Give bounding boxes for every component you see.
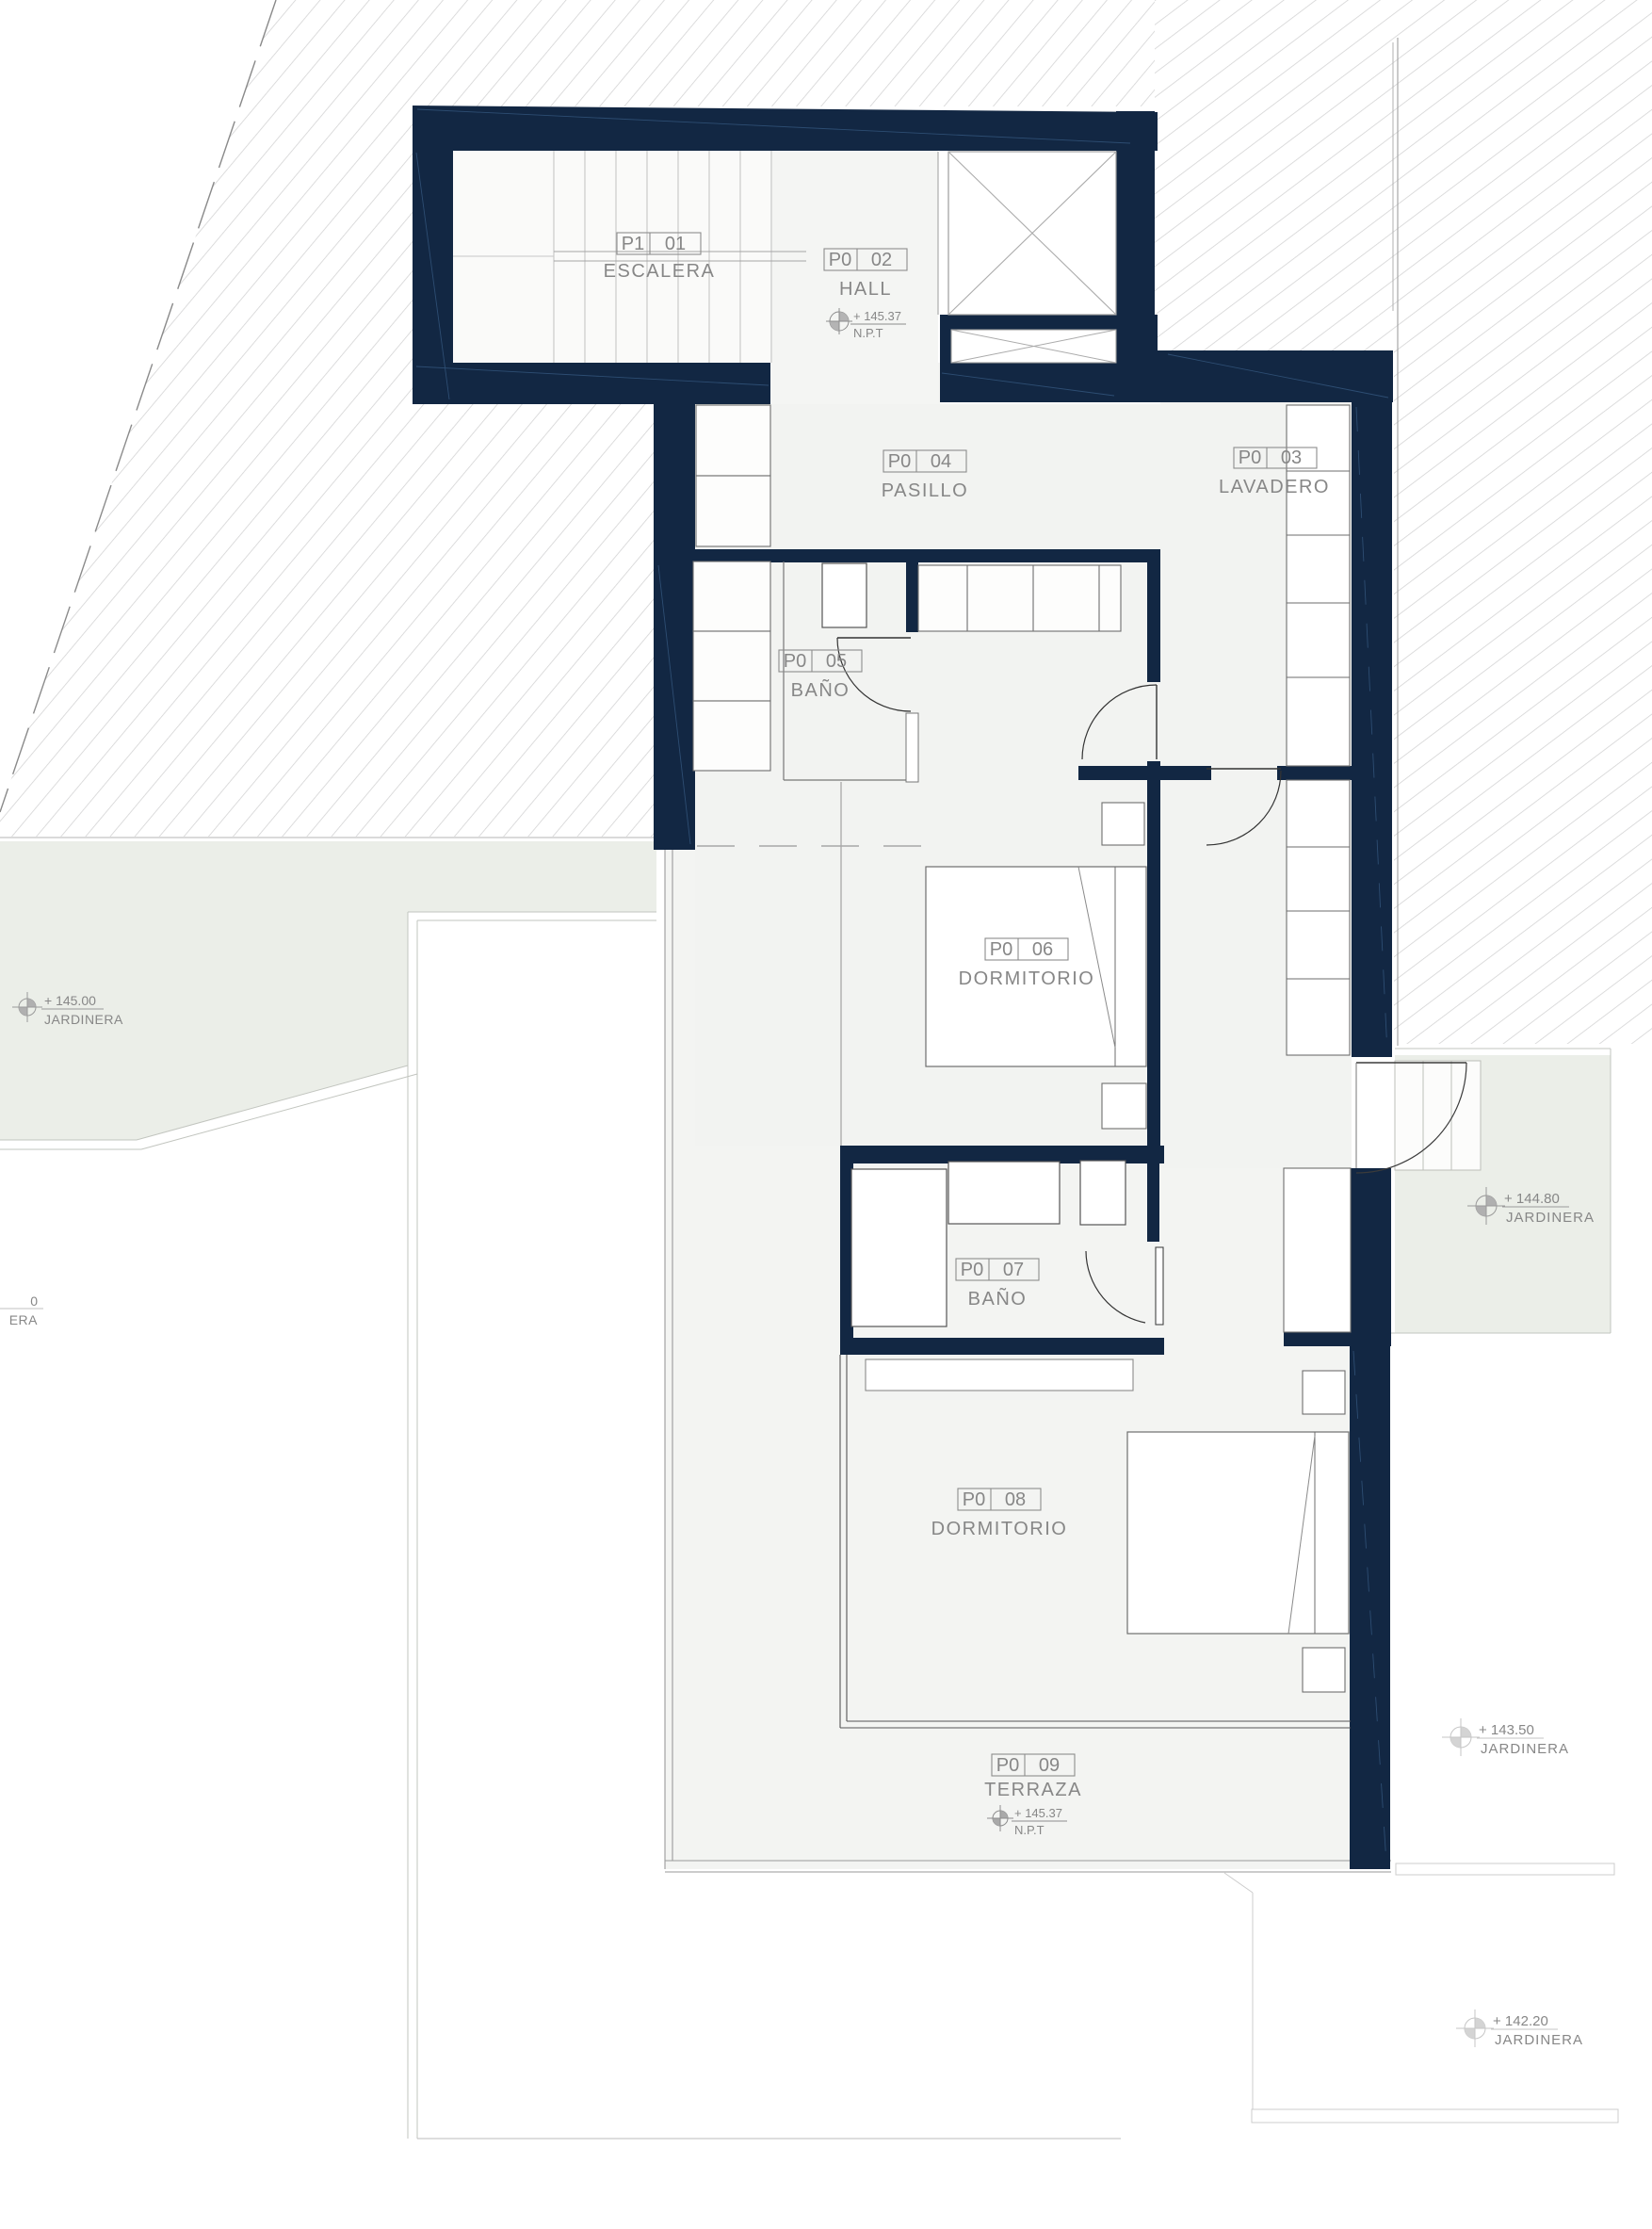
svg-text:JARDINERA: JARDINERA	[44, 1012, 123, 1027]
svg-text:+ 145.37: + 145.37	[1014, 1806, 1062, 1820]
svg-text:TERRAZA: TERRAZA	[984, 1780, 1082, 1800]
svg-text:P0: P0	[829, 250, 851, 270]
svg-text:ERA: ERA	[9, 1312, 38, 1327]
svg-text:+ 142.20: + 142.20	[1493, 2013, 1548, 2029]
svg-text:JARDINERA: JARDINERA	[1495, 2032, 1583, 2048]
svg-text:P1: P1	[622, 234, 644, 254]
svg-text:JARDINERA: JARDINERA	[1481, 1741, 1569, 1757]
svg-text:+ 143.50: + 143.50	[1479, 1722, 1534, 1738]
svg-text:06: 06	[1032, 939, 1053, 960]
svg-text:DORMITORIO: DORMITORIO	[931, 1519, 1068, 1539]
svg-text:0: 0	[30, 1293, 38, 1309]
svg-text:ESCALERA: ESCALERA	[604, 261, 716, 282]
svg-text:BAÑO: BAÑO	[968, 1287, 1028, 1310]
svg-text:LAVADERO: LAVADERO	[1219, 477, 1330, 497]
svg-text:P0: P0	[1239, 447, 1261, 468]
svg-text:DORMITORIO: DORMITORIO	[959, 968, 1095, 989]
svg-text:P0: P0	[996, 1755, 1019, 1776]
svg-text:01: 01	[665, 234, 686, 254]
svg-text:P0: P0	[784, 651, 806, 672]
svg-text:+ 144.80: + 144.80	[1504, 1191, 1560, 1207]
svg-text:P0: P0	[990, 939, 1012, 960]
svg-text:07: 07	[1003, 1260, 1024, 1280]
svg-text:PASILLO: PASILLO	[882, 480, 968, 501]
svg-text:08: 08	[1005, 1489, 1026, 1510]
svg-text:02: 02	[871, 250, 892, 270]
svg-text:09: 09	[1039, 1755, 1060, 1776]
svg-text:03: 03	[1281, 447, 1302, 468]
svg-text:P0: P0	[963, 1489, 985, 1510]
svg-text:HALL: HALL	[839, 279, 892, 300]
svg-text:P0: P0	[961, 1260, 983, 1280]
svg-text:+ 145.00: + 145.00	[44, 993, 96, 1008]
svg-text:05: 05	[826, 651, 847, 672]
svg-text:JARDINERA: JARDINERA	[1506, 1210, 1595, 1226]
svg-text:N.P.T: N.P.T	[1014, 1823, 1045, 1837]
svg-text:P0: P0	[888, 451, 911, 472]
svg-text:BAÑO: BAÑO	[791, 678, 850, 701]
svg-text:N.P.T: N.P.T	[853, 326, 883, 340]
svg-text:04: 04	[931, 451, 951, 472]
svg-text:+ 145.37: + 145.37	[853, 309, 901, 323]
